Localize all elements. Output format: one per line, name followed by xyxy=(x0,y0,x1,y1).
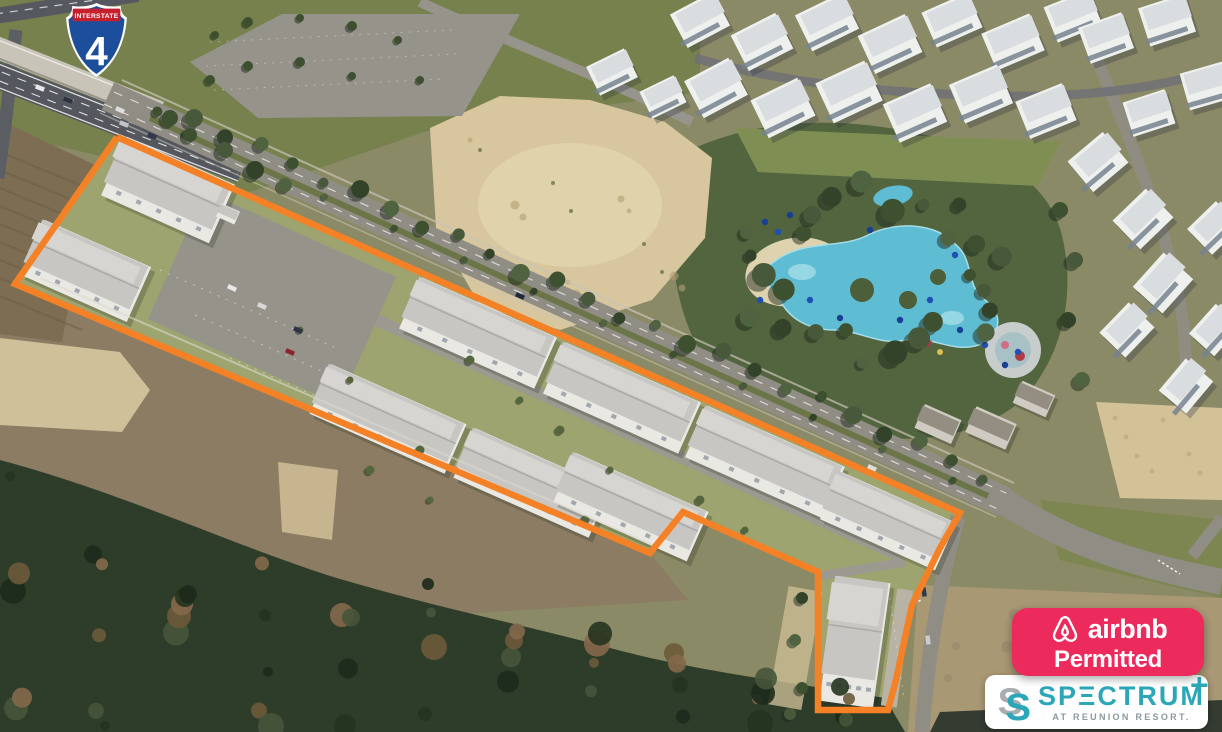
permitted-status-label: Permitted xyxy=(1054,648,1162,672)
interstate-banner-label: INTERSTATE xyxy=(75,13,119,20)
route-number: 4 xyxy=(85,28,108,74)
airbnb-permitted-badge: airbnb Permitted xyxy=(1012,608,1204,676)
spectrum-logo-card: S S SPΞCTRUM AT REUNION RESORT. + xyxy=(985,675,1208,729)
spectrum-s-icon: S S xyxy=(990,679,1036,725)
spectrum-tagline: AT REUNION RESORT. xyxy=(1052,712,1190,722)
interstate-4-shield: INTERSTATE 4 xyxy=(65,2,128,78)
airbnb-belo-icon xyxy=(1049,613,1081,645)
airbnb-brand-label: airbnb xyxy=(1088,616,1168,643)
svg-text:S: S xyxy=(1005,686,1031,725)
aerial-marketing-image: INTERSTATE 4 S S SPΞCTRUM AT REUNION RES… xyxy=(0,0,1222,732)
spectrum-wordmark: SPΞCTRUM xyxy=(1038,683,1205,710)
